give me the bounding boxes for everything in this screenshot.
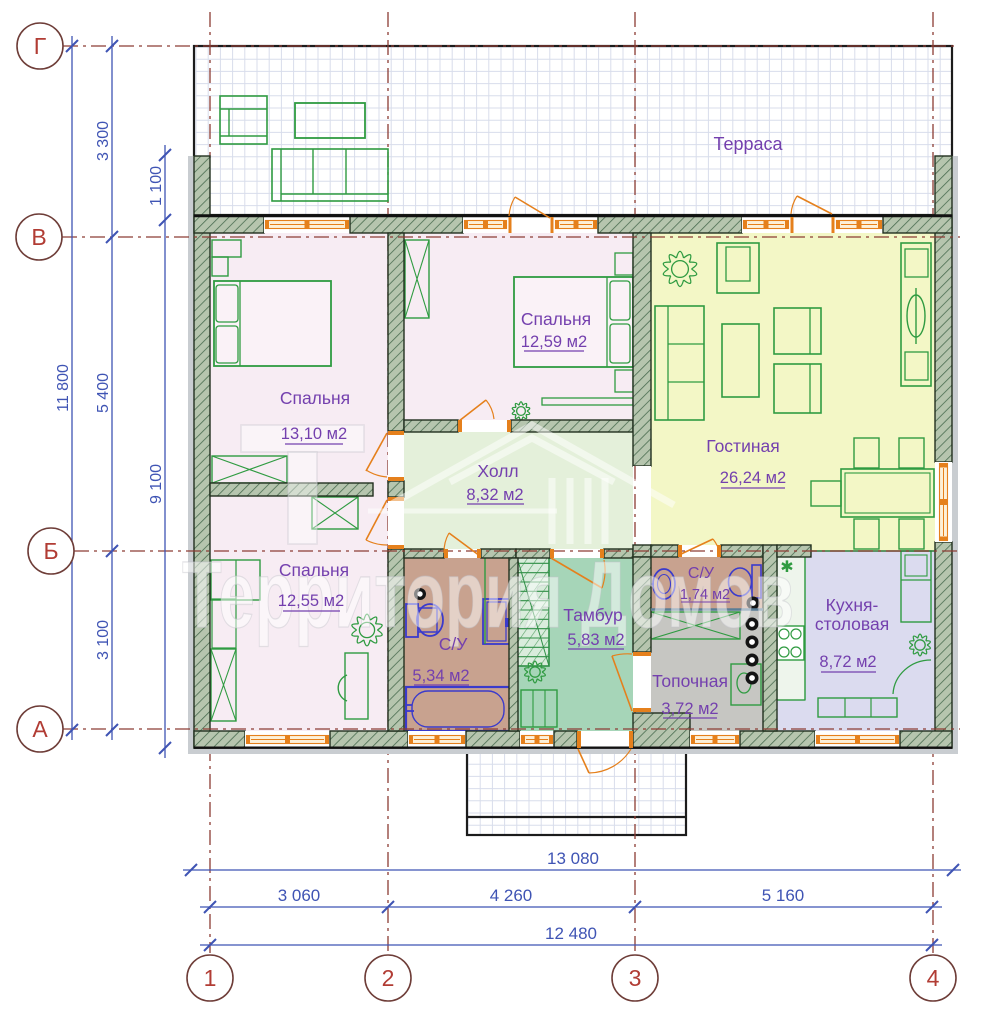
svg-text:3 100: 3 100 bbox=[95, 620, 112, 660]
svg-text:В: В bbox=[31, 224, 46, 250]
svg-text:5,34 м2: 5,34 м2 bbox=[412, 667, 469, 685]
svg-text:Г: Г bbox=[34, 33, 47, 59]
svg-text:4 260: 4 260 bbox=[490, 886, 533, 905]
svg-text:4: 4 bbox=[927, 965, 940, 991]
svg-text:Спальня: Спальня bbox=[280, 388, 350, 408]
svg-text:12 480: 12 480 bbox=[545, 924, 597, 943]
svg-text:1 100: 1 100 bbox=[148, 166, 165, 206]
svg-text:3: 3 bbox=[629, 965, 642, 991]
svg-text:С/У: С/У bbox=[688, 565, 715, 582]
svg-text:Спальня: Спальня bbox=[279, 560, 349, 580]
svg-text:Спальня: Спальня bbox=[521, 309, 591, 329]
svg-text:Гостиная: Гостиная bbox=[706, 436, 779, 456]
svg-text:3 060: 3 060 bbox=[278, 886, 321, 905]
svg-text:5,83 м2: 5,83 м2 bbox=[567, 631, 624, 649]
svg-text:8,72 м2: 8,72 м2 bbox=[819, 653, 876, 671]
svg-text:1: 1 bbox=[204, 965, 217, 991]
svg-text:13 080: 13 080 bbox=[547, 849, 599, 868]
svg-text:столовая: столовая bbox=[815, 614, 889, 634]
svg-text:Холл: Холл bbox=[477, 461, 518, 481]
svg-text:12,59 м2: 12,59 м2 bbox=[521, 333, 587, 351]
svg-text:12,55 м2: 12,55 м2 bbox=[278, 592, 344, 610]
svg-text:Терраса: Терраса bbox=[713, 134, 783, 154]
svg-text:Тамбур: Тамбур bbox=[563, 605, 622, 625]
svg-text:2: 2 bbox=[382, 965, 395, 991]
svg-text:С/У: С/У bbox=[439, 634, 469, 654]
svg-text:26,24 м2: 26,24 м2 bbox=[720, 469, 786, 487]
svg-text:8,32 м2: 8,32 м2 bbox=[466, 486, 523, 504]
svg-text:13,10 м2: 13,10 м2 bbox=[281, 425, 347, 443]
svg-text:3,72 м2: 3,72 м2 bbox=[661, 700, 718, 718]
svg-text:Топочная: Топочная bbox=[652, 671, 728, 691]
svg-text:5 400: 5 400 bbox=[95, 373, 112, 413]
svg-text:5 160: 5 160 bbox=[762, 886, 805, 905]
svg-text:Кухня-: Кухня- bbox=[826, 595, 879, 615]
svg-text:11 800: 11 800 bbox=[55, 364, 72, 412]
svg-text:1,74 м2: 1,74 м2 bbox=[680, 587, 730, 603]
svg-text:А: А bbox=[32, 716, 48, 742]
svg-text:9 100: 9 100 bbox=[148, 464, 165, 504]
svg-text:3 300: 3 300 bbox=[95, 121, 112, 161]
svg-text:Б: Б bbox=[43, 538, 58, 564]
